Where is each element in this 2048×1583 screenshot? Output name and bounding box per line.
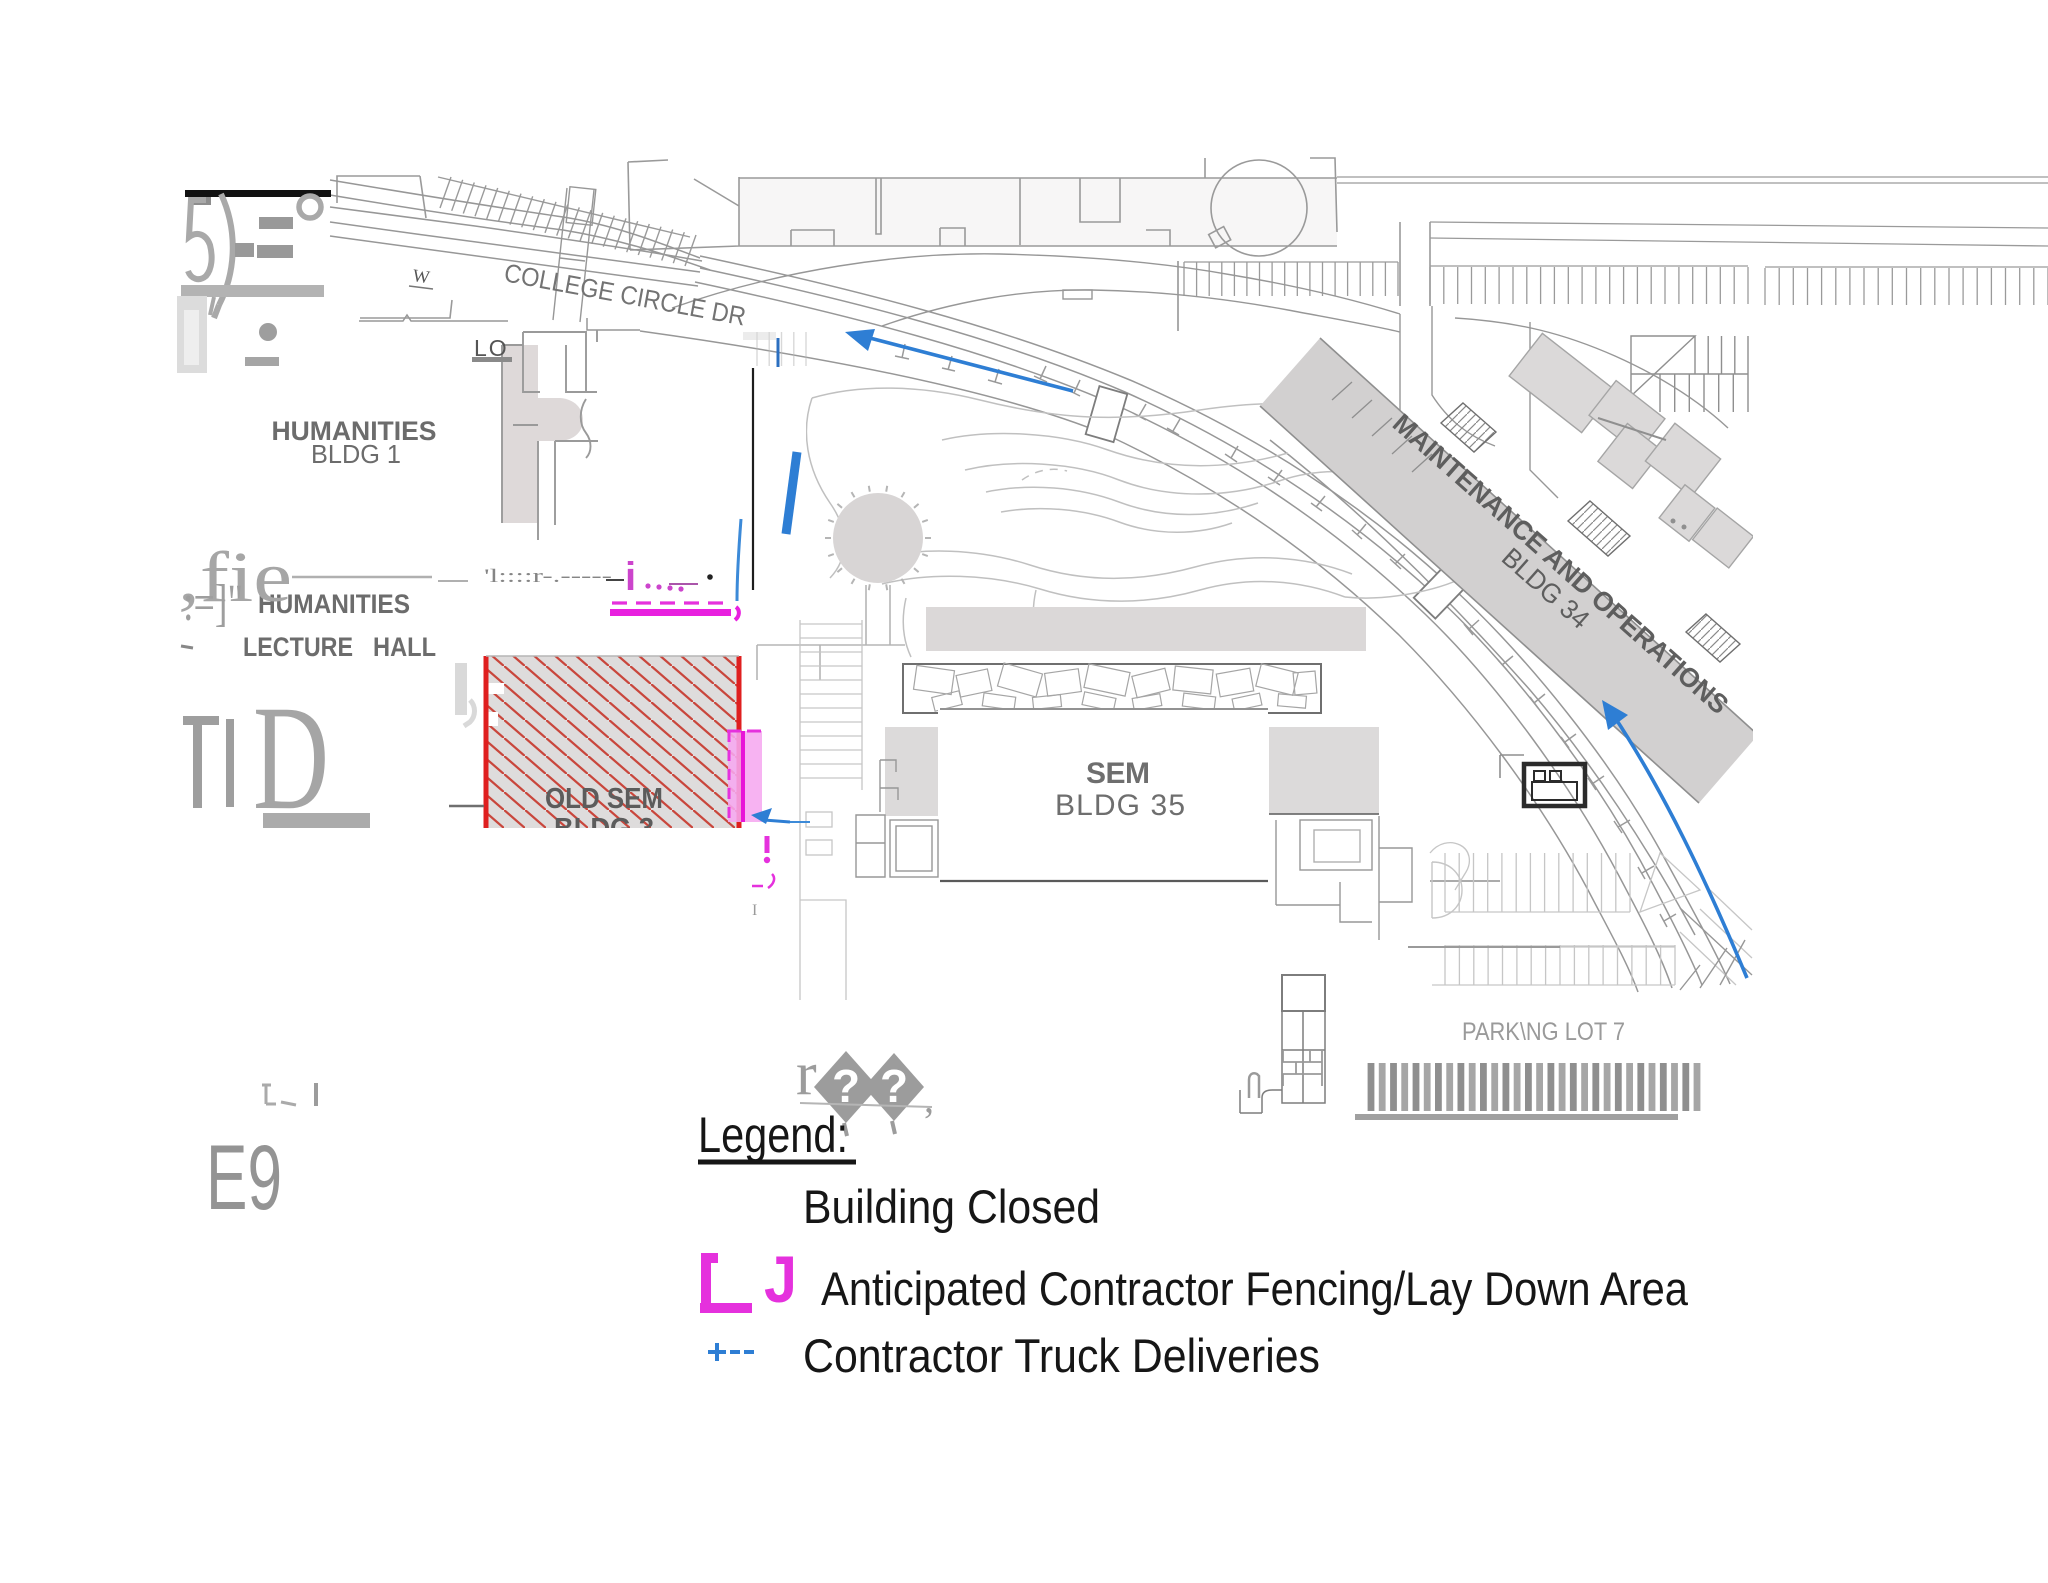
svg-text:I: I	[752, 902, 757, 919]
svg-text:W: W	[411, 265, 431, 287]
svg-text:BLDG 35: BLDG 35	[1055, 789, 1185, 822]
svg-text:i: i	[625, 555, 636, 599]
svg-text:LECTURE: LECTURE	[243, 632, 353, 662]
svg-text:Anticipated Contractor Fencing: Anticipated Contractor Fencing/Lay Down …	[821, 1262, 1689, 1315]
svg-text:'l::::r-.-----: 'l::::r-.-----	[484, 566, 612, 587]
svg-text:COLLEGE CIRCLE DR: COLLEGE CIRCLE DR	[502, 257, 748, 331]
svg-text:E9: E9	[206, 1127, 282, 1229]
svg-text:?: ?	[880, 1060, 908, 1112]
svg-text:OLD SEM: OLD SEM	[545, 783, 663, 815]
svg-text:PARK\NG LOT 7: PARK\NG LOT 7	[1462, 1018, 1625, 1046]
svg-text:J: J	[764, 1242, 797, 1316]
svg-text:r: r	[796, 1040, 817, 1108]
svg-text:BLDG 1: BLDG 1	[311, 439, 401, 469]
svg-text:Contractor Truck Deliveries: Contractor Truck Deliveries	[803, 1329, 1320, 1382]
svg-text:,: ,	[924, 1076, 934, 1121]
svg-text:SEM: SEM	[1086, 757, 1150, 790]
svg-text:Legend:: Legend:	[698, 1107, 848, 1163]
svg-text:HALL: HALL	[373, 632, 436, 662]
svg-text:Building Closed: Building Closed	[803, 1180, 1100, 1233]
svg-text::=]": :=]"	[183, 575, 243, 632]
